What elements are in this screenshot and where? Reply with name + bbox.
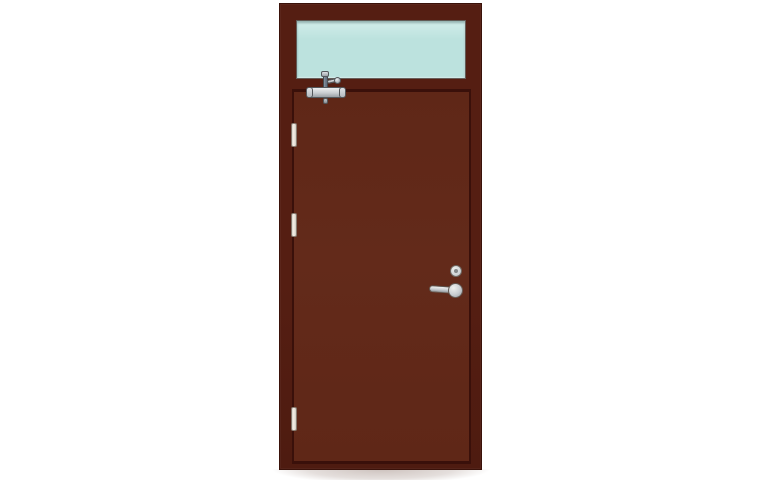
door-closer-endcap-right <box>339 87 346 98</box>
hinge-bottom <box>291 407 297 431</box>
door-shadow <box>264 469 498 480</box>
lever-handle-rose <box>448 283 463 298</box>
door-closer-knob <box>321 71 329 77</box>
door-closer-pin <box>323 98 328 104</box>
product-photo-stage <box>0 0 768 480</box>
cylinder-lock <box>450 265 462 277</box>
door-closer-body <box>307 87 345 98</box>
hinge-middle <box>291 213 297 237</box>
door-closer-ball-joint <box>334 77 341 84</box>
door-leaf <box>292 89 471 464</box>
hinge-top <box>291 123 297 147</box>
cylinder-lock-core <box>454 269 458 273</box>
door-closer-endcap-left <box>306 87 313 98</box>
door-frame <box>279 3 482 470</box>
